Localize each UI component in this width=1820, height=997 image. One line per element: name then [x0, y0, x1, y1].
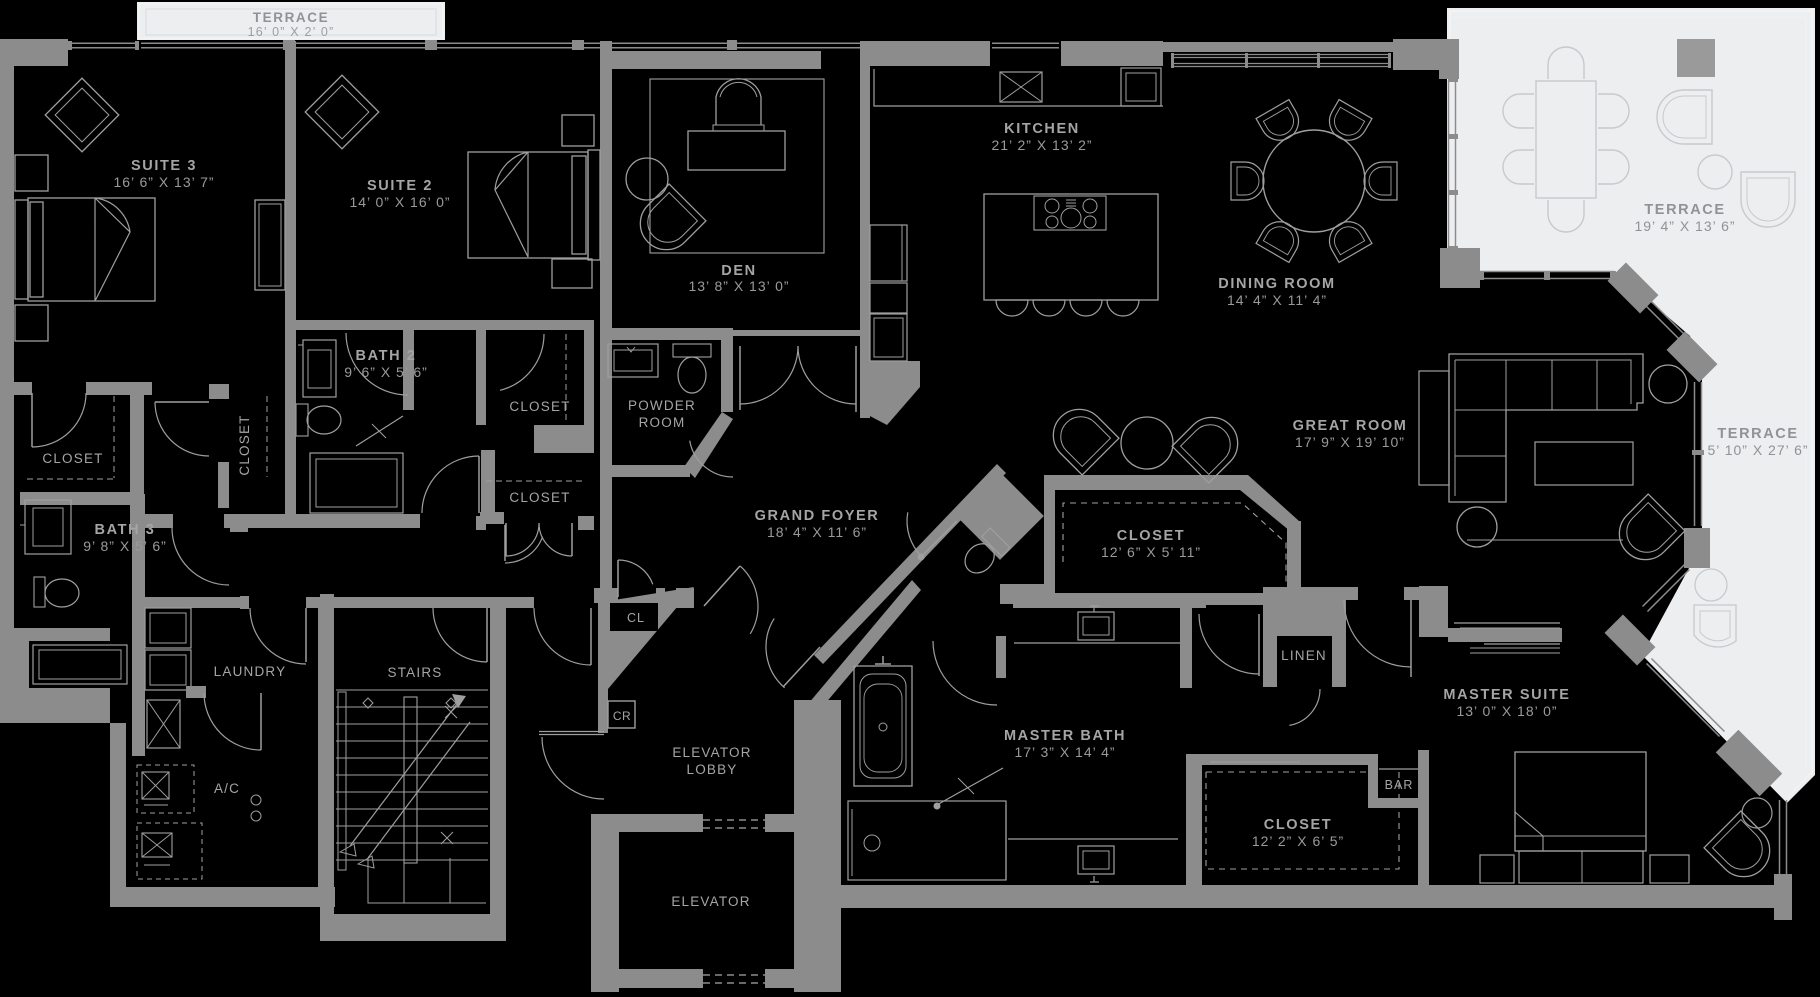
svg-text:LINEN: LINEN — [1281, 648, 1327, 663]
svg-text:GREAT ROOM: GREAT ROOM — [1293, 418, 1408, 434]
svg-text:9’ 8” X 5’ 6”: 9’ 8” X 5’ 6” — [83, 538, 167, 554]
svg-text:21’ 2” X 13’ 2”: 21’ 2” X 13’ 2” — [991, 137, 1092, 153]
svg-text:KITCHEN: KITCHEN — [1004, 121, 1080, 137]
svg-text:ELEVATOR: ELEVATOR — [672, 745, 751, 760]
svg-text:A/C: A/C — [214, 781, 240, 796]
svg-text:MASTER BATH: MASTER BATH — [1004, 728, 1126, 744]
svg-text:5’ 10” X 27’ 6”: 5’ 10” X 27’ 6” — [1707, 442, 1808, 458]
svg-text:14’ 0” X 16’ 0”: 14’ 0” X 16’ 0” — [349, 194, 450, 210]
svg-text:DINING ROOM: DINING ROOM — [1218, 276, 1336, 292]
svg-text:CLOSET: CLOSET — [509, 490, 570, 505]
svg-text:STAIRS: STAIRS — [388, 665, 443, 680]
svg-text:ROOM: ROOM — [639, 415, 686, 430]
svg-text:14’ 4” X 11’ 4”: 14’ 4” X 11’ 4” — [1227, 292, 1327, 308]
svg-text:SUITE 2: SUITE 2 — [367, 178, 433, 194]
svg-text:POWDER: POWDER — [628, 398, 696, 413]
svg-text:13’ 8” X 13’ 0”: 13’ 8” X 13’ 0” — [688, 278, 789, 294]
svg-text:CLOSET: CLOSET — [237, 414, 252, 475]
svg-text:CR: CR — [613, 709, 631, 723]
svg-text:CLOSET: CLOSET — [42, 451, 103, 466]
svg-text:9’ 6” X 5’ 6”: 9’ 6” X 5’ 6” — [344, 364, 428, 380]
svg-text:MASTER SUITE: MASTER SUITE — [1443, 687, 1570, 703]
svg-text:GRAND FOYER: GRAND FOYER — [755, 508, 880, 524]
svg-text:TERRACE: TERRACE — [253, 10, 329, 25]
svg-text:BATH 3: BATH 3 — [95, 522, 156, 538]
svg-text:13’ 0” X 18’ 0”: 13’ 0” X 18’ 0” — [1456, 703, 1557, 719]
svg-text:16’ 6” X 13’ 7”: 16’ 6” X 13’ 7” — [113, 174, 214, 190]
svg-text:LAUNDRY: LAUNDRY — [214, 664, 287, 679]
svg-text:SUITE 3: SUITE 3 — [131, 158, 197, 174]
svg-text:12’ 6” X 5’ 11”: 12’ 6” X 5’ 11” — [1101, 544, 1201, 560]
svg-text:TERRACE: TERRACE — [1644, 202, 1725, 218]
svg-text:19’ 4” X 13’ 6”: 19’ 4” X 13’ 6” — [1634, 218, 1735, 234]
svg-text:BATH 2: BATH 2 — [356, 348, 417, 364]
svg-text:18’ 4” X 11’ 6”: 18’ 4” X 11’ 6” — [767, 524, 867, 540]
svg-text:CL: CL — [627, 611, 645, 625]
svg-text:DEN: DEN — [721, 263, 756, 279]
svg-text:CLOSET: CLOSET — [1117, 528, 1185, 544]
svg-text:16’ 0” X 2’ 0”: 16’ 0” X 2’ 0” — [248, 25, 335, 39]
svg-text:17’ 3” X 14’ 4”: 17’ 3” X 14’ 4” — [1014, 744, 1115, 760]
svg-text:LOBBY: LOBBY — [686, 762, 737, 777]
svg-text:CLOSET: CLOSET — [1264, 817, 1332, 833]
svg-text:12’ 2” X 6’ 5”: 12’ 2” X 6’ 5” — [1252, 833, 1344, 849]
svg-text:CLOSET: CLOSET — [509, 399, 570, 414]
svg-text:17’ 9” X 19’ 10”: 17’ 9” X 19’ 10” — [1295, 434, 1405, 450]
svg-text:ELEVATOR: ELEVATOR — [671, 894, 750, 909]
svg-text:TERRACE: TERRACE — [1717, 426, 1798, 442]
